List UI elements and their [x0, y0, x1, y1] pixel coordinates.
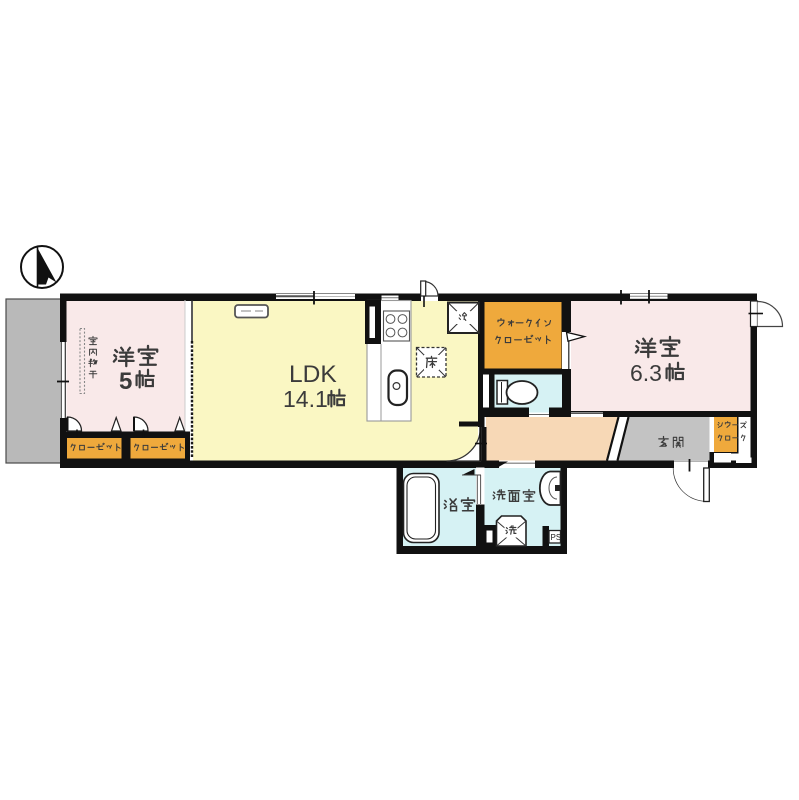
svg-text:LDK: LDK [289, 361, 337, 388]
svg-text:5: 5 [119, 368, 132, 395]
svg-text:14.1: 14.1 [283, 386, 328, 412]
svg-text:6.3: 6.3 [630, 360, 662, 386]
svg-text:PS: PS [551, 533, 562, 542]
